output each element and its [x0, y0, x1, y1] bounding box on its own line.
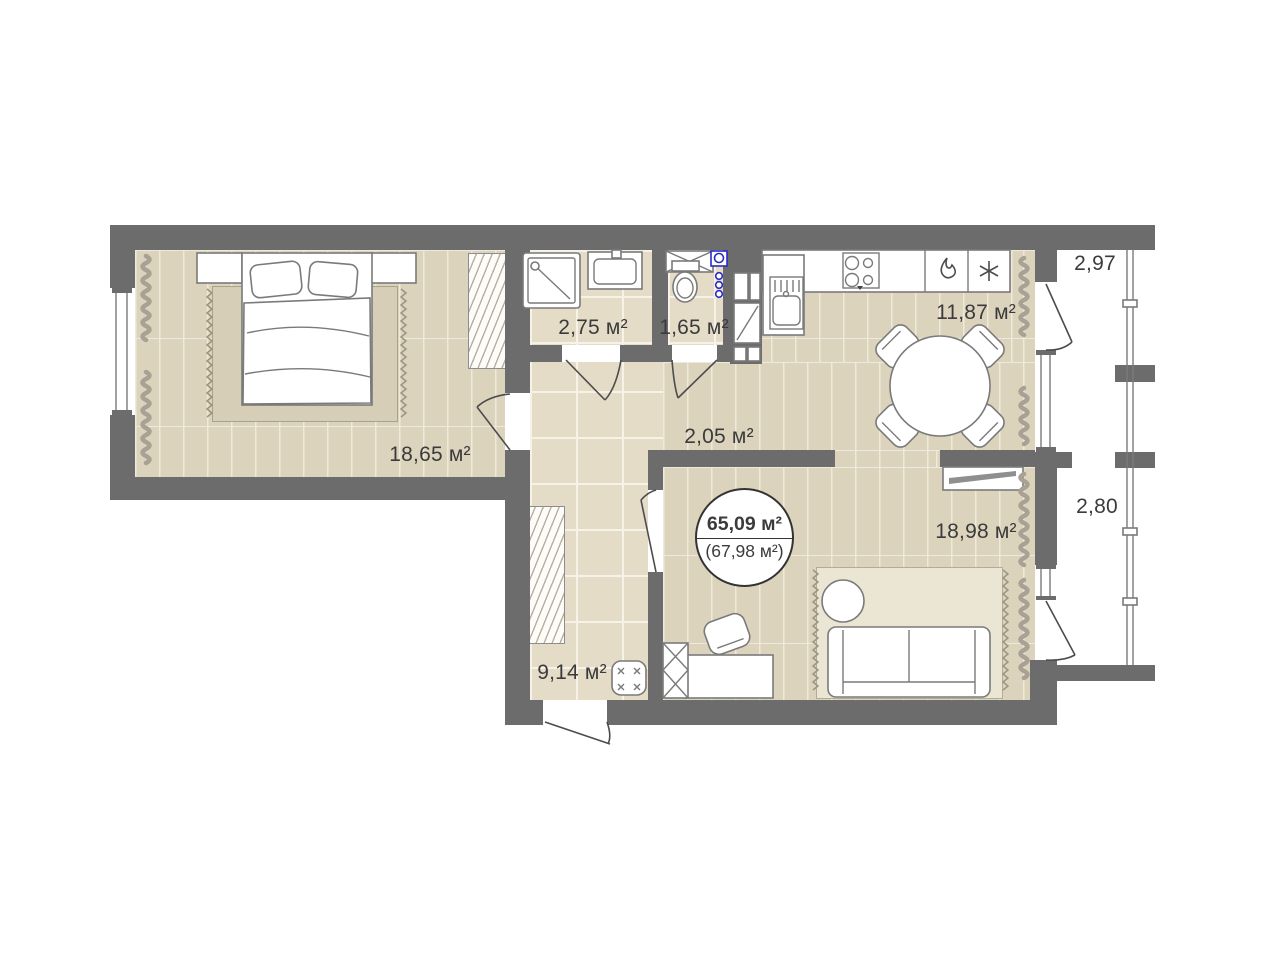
wall-right-top [1035, 250, 1057, 282]
bathroom-door-opening [562, 345, 620, 362]
wall-bottom-left [505, 700, 543, 725]
total-area-secondary: (67,98 м²) [705, 541, 783, 562]
wall-bath-bottom-a [530, 345, 562, 362]
wc-area-label: 1,65 м² [659, 316, 729, 340]
kitchen-living-opening-floor [835, 450, 940, 467]
wall-bedroom-right-upper [505, 250, 530, 393]
living-door-opening [648, 490, 663, 572]
corridor-area-label: 9,14 м² [537, 661, 607, 685]
wall-hall-living [648, 450, 835, 467]
balcony-bottom-wall [1057, 665, 1155, 681]
bedroom-door-opening [505, 393, 530, 450]
wall-living-left-upper [648, 467, 663, 490]
balcony-top-floor [1057, 250, 1127, 452]
bathroom-area-label: 2,75 м² [558, 316, 628, 340]
bedroom-window [110, 288, 135, 415]
hall-area-label: 2,05 м² [684, 425, 754, 449]
total-area-main: 65,09 м² [707, 513, 782, 536]
living-area-label: 18,98 м² [935, 520, 1016, 544]
glazing-block-mid [1115, 452, 1155, 468]
entrance-door [545, 722, 610, 744]
wall-bottom-right [607, 700, 1057, 725]
wc-door-opening [672, 345, 717, 362]
wall-kitchen-living [940, 450, 1035, 467]
wall-left-upper [110, 250, 135, 288]
total-area-divider [697, 538, 792, 539]
wall-living-left-lower [648, 572, 663, 700]
living-window [1035, 565, 1057, 600]
wall-right-mid [1035, 452, 1057, 565]
balcony-divider-tab [1057, 452, 1072, 468]
living-balcony-door-opening [1035, 600, 1057, 660]
wall-bath-bottom-b [620, 345, 672, 362]
entrance-door-opening [543, 700, 607, 725]
kitchen-balcony-door-opening [1035, 282, 1057, 350]
kitchen-window [1035, 350, 1057, 452]
total-area-badge: 65,09 м² (67,98 м²) [695, 488, 794, 587]
corridor-wardrobe [527, 506, 565, 644]
wall-top [110, 225, 1155, 250]
balcony-top-area-label: 2,97 [1074, 252, 1116, 276]
kitchen-area-label: 11,87 м² [936, 301, 1016, 325]
bedroom-area-label: 18,65 м² [389, 443, 470, 467]
living-rug [816, 567, 1003, 699]
shaft-block [730, 250, 762, 364]
wall-corridor-left [505, 450, 530, 725]
bedroom-wardrobe [468, 253, 507, 369]
balcony-bottom-area-label: 2,80 [1076, 495, 1118, 519]
bedroom-rug [212, 286, 398, 422]
wall-bedroom-bottom [110, 477, 530, 500]
floor-plan: 18,65 м² 2,75 м² 1,65 м² 11,87 м² 2,05 м… [0, 0, 1280, 960]
wall-right-corner [1030, 660, 1057, 705]
glazing-block-upper [1115, 365, 1155, 382]
